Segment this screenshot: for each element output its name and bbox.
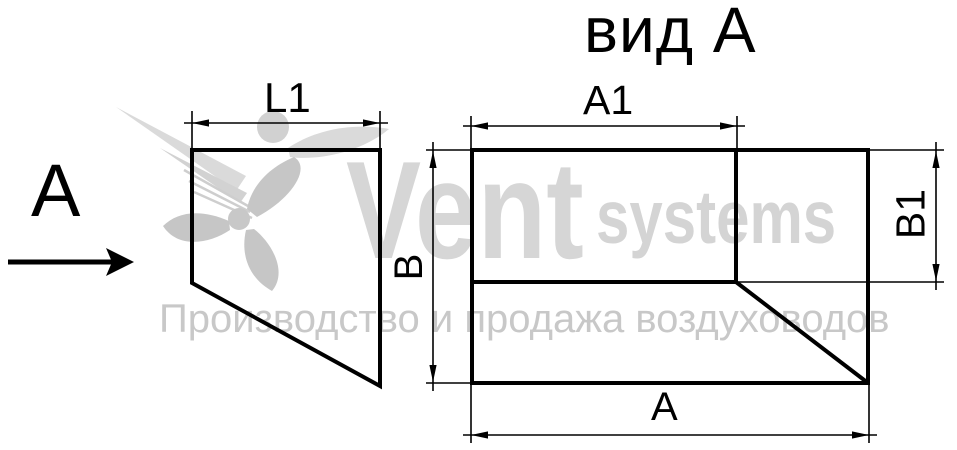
dim-label-b1: B1 — [891, 189, 932, 239]
drawing-linework — [0, 0, 957, 450]
dim-label-a: А — [651, 387, 678, 427]
plan-diagonal-line — [736, 282, 868, 383]
technical-drawing-canvas: Vent systems Производство и продажа возд… — [0, 0, 957, 450]
dim-label-l1: L1 — [264, 77, 311, 119]
page-title: вид А — [584, 0, 757, 62]
left-view-outline — [192, 150, 380, 386]
view-direction-label: А — [31, 154, 80, 228]
b-dimension — [426, 142, 474, 391]
view-direction-arrow-icon — [8, 248, 134, 276]
dim-label-a1: A1 — [583, 80, 633, 121]
dim-label-b: В — [389, 254, 429, 281]
plan-view-outline — [472, 150, 868, 383]
